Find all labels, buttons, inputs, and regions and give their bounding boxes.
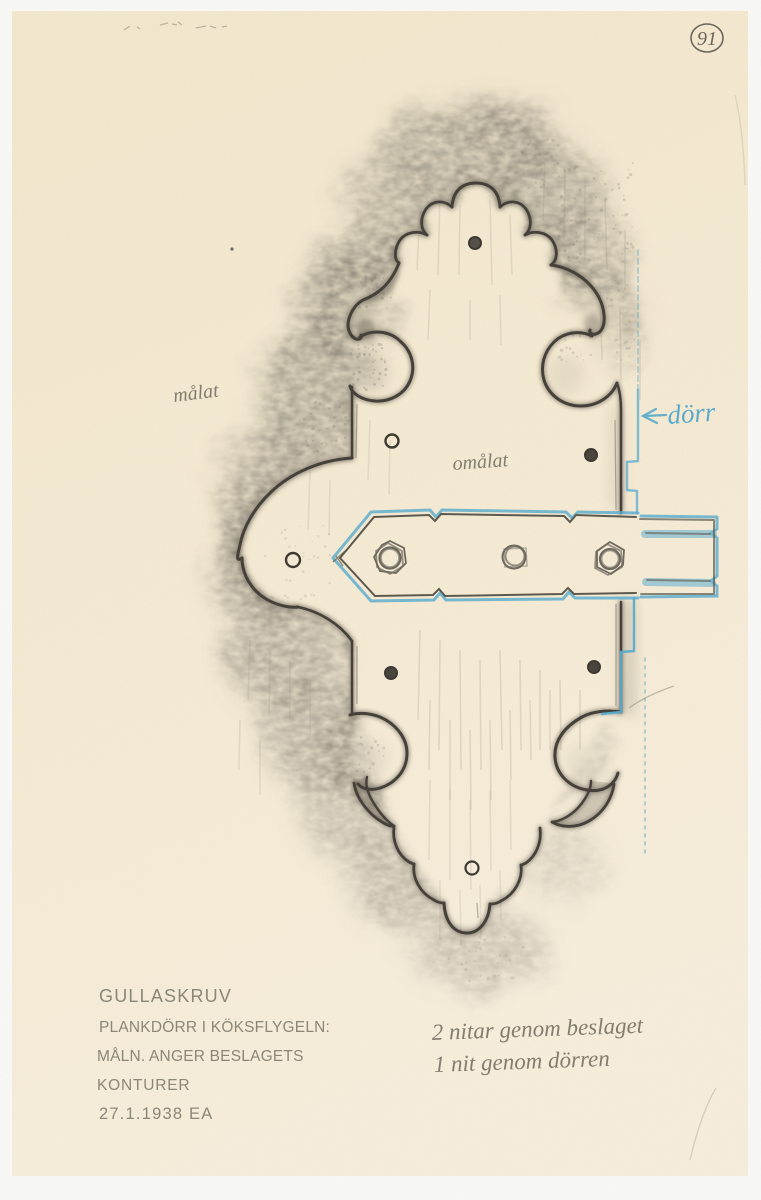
svg-text:PLANKDÖRR I KÖKSFLYGELN:: PLANKDÖRR I KÖKSFLYGELN: <box>99 1018 330 1036</box>
svg-text:27.1.1938 EA: 27.1.1938 EA <box>99 1105 213 1123</box>
svg-text:omålat: omålat <box>452 449 509 475</box>
svg-text:MÅLN. ANGER BESLAGETS: MÅLN. ANGER BESLAGETS <box>97 1048 304 1065</box>
svg-text:dörr: dörr <box>666 397 716 430</box>
svg-text:KONTURER: KONTURER <box>97 1077 190 1094</box>
svg-text:GULLASKRUV: GULLASKRUV <box>99 986 232 1006</box>
svg-text:91: 91 <box>697 28 717 50</box>
